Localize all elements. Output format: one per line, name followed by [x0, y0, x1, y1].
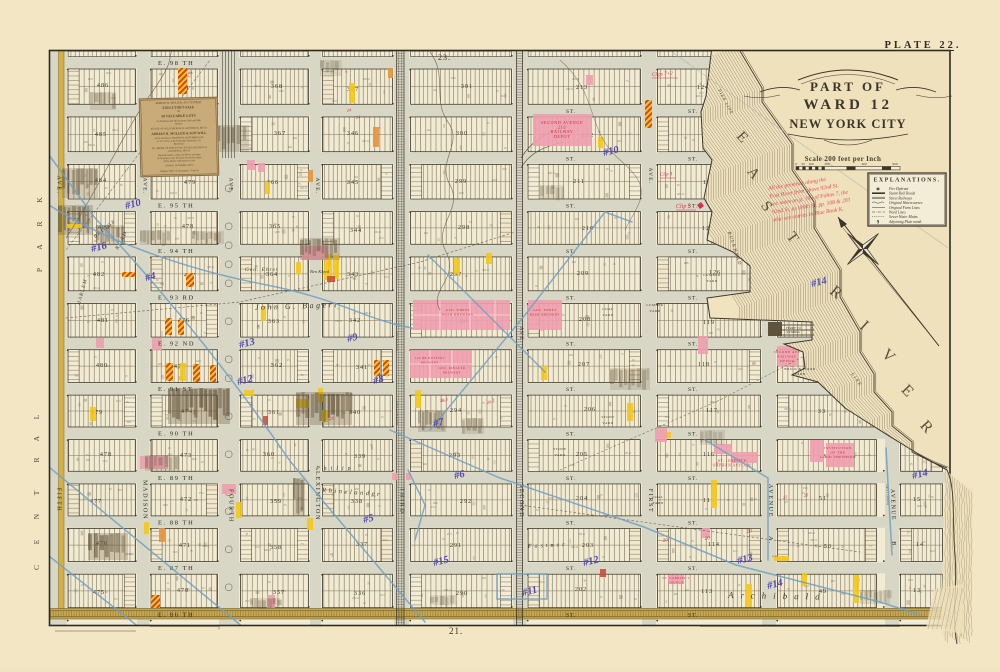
svg-text:PLATE 22.: PLATE 22. [885, 40, 962, 51]
svg-text:100.11: 100.11 [264, 549, 272, 552]
svg-text:ASTORIA: ASTORIA [786, 330, 800, 334]
svg-text:N: N [32, 513, 41, 519]
svg-text:600: 600 [892, 162, 897, 166]
svg-text:118: 118 [698, 361, 710, 368]
svg-text:COAL: COAL [652, 495, 663, 499]
svg-text:NEW YORK CITY: NEW YORK CITY [789, 117, 906, 131]
svg-text:ST.: ST. [566, 342, 576, 348]
svg-text:100.11: 100.11 [677, 193, 685, 196]
svg-text:E. 88 TH: E. 88 TH [158, 520, 194, 527]
svg-text:113: 113 [701, 588, 713, 595]
svg-text:P: P [35, 268, 44, 272]
svg-text:336: 336 [354, 590, 366, 597]
svg-text:Scale 200 feet per Inch: Scale 200 feet per Inch [805, 155, 882, 163]
svg-text:YARD: YARD [649, 309, 660, 313]
svg-text:ST.: ST. [688, 249, 698, 255]
svg-text:ELEVATED: ELEVATED [395, 331, 399, 351]
svg-text:20.8: 20.8 [163, 504, 168, 507]
svg-text:Adjoining Plate numb: Adjoining Plate numb [888, 220, 922, 224]
svg-text:L: L [32, 414, 41, 419]
svg-text:20.8: 20.8 [192, 458, 197, 461]
svg-text:25.5: 25.5 [733, 550, 738, 553]
svg-text:100.11: 100.11 [88, 144, 96, 147]
svg-text:20.8: 20.8 [275, 231, 280, 234]
svg-text:100.11: 100.11 [300, 187, 308, 190]
svg-text:100.11: 100.11 [352, 597, 360, 600]
svg-text:ST.: ST. [688, 613, 698, 619]
svg-text:346: 346 [347, 130, 359, 137]
svg-text:100.11: 100.11 [363, 78, 371, 81]
svg-text:209: 209 [577, 270, 589, 277]
svg-text:100: 100 [808, 162, 813, 166]
svg-text:Broadway:: Broadway: [174, 142, 185, 145]
svg-text:20.8: 20.8 [908, 579, 913, 582]
svg-text:20.8: 20.8 [106, 365, 111, 368]
svg-text:Philip: Philip [315, 466, 355, 472]
svg-text:ST.: ST. [688, 476, 698, 482]
svg-text:100.11: 100.11 [482, 269, 490, 272]
svg-text:368: 368 [271, 83, 283, 90]
svg-text:100.11: 100.11 [362, 140, 370, 143]
svg-text:ST.: ST. [566, 476, 576, 482]
svg-text:20.8: 20.8 [459, 192, 464, 195]
svg-text:Original Watercourses: Original Watercourses [889, 201, 923, 205]
svg-text:ST.: ST. [688, 387, 698, 393]
svg-text:100.11: 100.11 [335, 320, 343, 323]
svg-text:INSTITUTION: INSTITUTION [824, 446, 852, 450]
svg-text:20.8: 20.8 [332, 100, 337, 103]
svg-text:ST.: ST. [566, 432, 576, 438]
svg-text:291: 291 [450, 542, 462, 549]
svg-text:301: 301 [461, 83, 473, 90]
svg-text:20.8: 20.8 [617, 140, 622, 143]
svg-text:CHURCH: CHURCH [668, 581, 684, 585]
svg-text:486: 486 [97, 82, 109, 89]
svg-text:50: 50 [801, 162, 805, 166]
svg-text:YARD: YARD [602, 313, 613, 317]
svg-text:100.11: 100.11 [578, 533, 586, 536]
svg-text:100.11: 100.11 [112, 129, 120, 132]
svg-text:Sewer Water Mains: Sewer Water Mains [889, 215, 918, 219]
svg-text:AVE.: AVE. [142, 178, 148, 195]
svg-text:Geo. Ehret: Geo. Ehret [245, 267, 278, 273]
svg-text:T: T [32, 490, 41, 495]
svg-text:THIRD: THIRD [399, 488, 406, 515]
svg-text:100.11: 100.11 [572, 78, 580, 81]
svg-text:479: 479 [184, 179, 196, 186]
svg-text:473: 473 [180, 452, 192, 459]
svg-text:ST.: ST. [566, 109, 576, 115]
svg-text:100.11: 100.11 [566, 88, 574, 91]
svg-text:100.11: 100.11 [808, 532, 816, 535]
svg-text:25.5: 25.5 [199, 492, 204, 495]
svg-text:20.8: 20.8 [88, 78, 93, 81]
svg-text:25.5: 25.5 [380, 594, 385, 597]
svg-text:DEPOT: DEPOT [780, 359, 794, 363]
svg-text:25.5: 25.5 [447, 533, 452, 536]
svg-text:YARD: YARD [602, 421, 613, 425]
svg-text:K: K [35, 197, 44, 203]
svg-text:100.11: 100.11 [571, 546, 579, 549]
svg-text:AVE.: AVE. [227, 178, 233, 195]
svg-text:339: 339 [354, 453, 366, 460]
svg-text:AVE.: AVE. [518, 327, 524, 344]
svg-text:20.8: 20.8 [492, 179, 497, 182]
svg-text:478: 478 [100, 451, 112, 458]
svg-text:E. 94 TH: E. 94 TH [158, 248, 194, 255]
svg-text:100.11: 100.11 [548, 172, 556, 175]
svg-text:361: 361 [268, 409, 280, 416]
svg-text:23.: 23. [438, 53, 451, 62]
svg-text:ST.: ST. [688, 432, 698, 438]
svg-text:AVE.: AVE. [647, 168, 653, 185]
svg-text:BREWERY: BREWERY [443, 371, 461, 375]
svg-text:100.11: 100.11 [374, 231, 382, 234]
svg-text:GEO. EHRET: GEO. EHRET [533, 308, 556, 312]
svg-text:Streets.: Streets. [175, 122, 183, 125]
svg-text:25.5: 25.5 [549, 497, 554, 500]
svg-text:298: 298 [458, 224, 470, 231]
svg-text:LUMBER: LUMBER [646, 303, 663, 307]
svg-text:33: 33 [818, 408, 826, 415]
svg-text:FOURTH: FOURTH [227, 489, 234, 523]
svg-text:367: 367 [274, 130, 286, 137]
svg-text:GEO. RINGLER: GEO. RINGLER [438, 366, 465, 370]
svg-text:471: 471 [179, 542, 191, 549]
svg-text:Street Railways: Street Railways [889, 196, 912, 200]
svg-text:Ben Khral: Ben Khral [310, 269, 330, 274]
svg-text:GEO. EHRET: GEO. EHRET [446, 308, 470, 312]
svg-text:299: 299 [455, 178, 467, 185]
svg-text:LUMBER: LUMBER [703, 273, 720, 277]
svg-text:116: 116 [703, 451, 715, 458]
svg-text:R: R [35, 221, 44, 226]
svg-text:362: 362 [271, 362, 283, 369]
svg-text:E. 91 ST: E. 91 ST [158, 386, 193, 393]
svg-text:358: 358 [270, 544, 282, 551]
svg-text:20.8: 20.8 [501, 95, 506, 98]
svg-text:0: 0 [795, 162, 797, 166]
svg-text:E. 98 TH: E. 98 TH [158, 60, 194, 67]
svg-text:25.5: 25.5 [540, 581, 545, 584]
svg-text:E. 95 TH: E. 95 TH [158, 203, 194, 210]
svg-text:SECOND: SECOND [518, 484, 525, 518]
svg-text:ST.: ST. [688, 295, 698, 301]
svg-text:481: 481 [97, 317, 109, 324]
svg-text:100.11: 100.11 [696, 95, 704, 98]
svg-text:25.5: 25.5 [116, 400, 121, 403]
svg-text:FIFTH: FIFTH [56, 488, 62, 512]
svg-text:ST. GABRIEL'S: ST. GABRIEL'S [662, 576, 690, 580]
svg-text:BEER BREWERY: BEER BREWERY [530, 313, 560, 317]
svg-text:478: 478 [182, 223, 194, 230]
svg-text:STONE: STONE [553, 447, 566, 451]
svg-text:25.5: 25.5 [384, 276, 389, 279]
svg-text:363: 363 [268, 318, 280, 325]
svg-text:YARD: YARD [554, 453, 565, 457]
svg-text:25.5: 25.5 [173, 551, 178, 554]
svg-text:LAWRENCE, DEC'D.: LAWRENCE, DEC'D. [168, 149, 191, 152]
svg-text:ST.: ST. [688, 521, 698, 527]
svg-text:A: A [35, 244, 44, 250]
svg-text:ST.: ST. [688, 566, 698, 572]
svg-text:AVE.: AVE. [56, 175, 62, 194]
svg-text:20.8: 20.8 [196, 360, 201, 363]
svg-text:400: 400 [861, 162, 866, 166]
svg-text:E. 86 TH: E. 86 TH [158, 612, 194, 619]
svg-text:EXPLANATIONS.: EXPLANATIONS. [874, 178, 941, 184]
svg-text:207: 207 [578, 361, 590, 368]
svg-text:25.5: 25.5 [383, 539, 388, 542]
svg-text:ST.: ST. [688, 109, 698, 115]
svg-text:YARD: YARD [706, 279, 717, 283]
svg-text:ST.: ST. [566, 295, 576, 301]
svg-text:338: 338 [351, 498, 363, 505]
svg-text:25.5: 25.5 [103, 460, 108, 463]
svg-text:E. 90 TH: E. 90 TH [158, 431, 194, 438]
svg-text:100.11: 100.11 [810, 539, 818, 542]
svg-text:YARD: YARD [652, 501, 663, 505]
svg-text:a.16: a.16 [772, 554, 778, 558]
svg-text:20.8: 20.8 [454, 452, 459, 455]
svg-text:BEER BREWERY: BEER BREWERY [442, 313, 474, 317]
svg-text:Fire Hydrant: Fire Hydrant [888, 187, 909, 191]
svg-text:21.: 21. [449, 626, 463, 636]
svg-text:Archibald: Archibald [727, 590, 827, 602]
svg-text:203: 203 [582, 542, 594, 549]
svg-text:25.5: 25.5 [379, 237, 384, 240]
svg-text:YARD: YARD [794, 372, 805, 376]
svg-text:117: 117 [706, 407, 718, 414]
svg-text:208: 208 [579, 316, 591, 323]
svg-text:C: C [32, 565, 41, 570]
svg-text:20.8: 20.8 [738, 368, 743, 371]
svg-text:E. 89 TH: E. 89 TH [158, 475, 194, 482]
svg-text:100.11: 100.11 [93, 287, 101, 290]
svg-text:100.11: 100.11 [784, 408, 792, 411]
svg-text:292: 292 [460, 498, 472, 505]
svg-text:58 VALUABLE LOTS: 58 VALUABLE LOTS [161, 114, 195, 119]
svg-text:300: 300 [456, 130, 468, 137]
svg-text:341: 341 [356, 364, 368, 371]
svg-text:25.5: 25.5 [281, 590, 286, 593]
svg-text:Steam Rail Roads: Steam Rail Roads [889, 192, 916, 196]
svg-text:202: 202 [575, 586, 587, 593]
svg-text:200: 200 [824, 162, 829, 166]
svg-text:Ward Lines: Ward Lines [889, 211, 906, 215]
svg-text:50: 50 [824, 543, 832, 550]
svg-text:25.5: 25.5 [245, 600, 250, 603]
svg-text:Original Farm Lines: Original Farm Lines [889, 206, 920, 210]
svg-text:100.11: 100.11 [254, 85, 262, 88]
svg-text:JACOB RUPPERT: JACOB RUPPERT [415, 356, 445, 360]
svg-text:ST.: ST. [566, 613, 576, 619]
svg-text:AVE.: AVE. [314, 178, 320, 195]
svg-text:25.5: 25.5 [803, 487, 808, 490]
svg-text:ST.: ST. [566, 566, 576, 572]
svg-text:Clip 5: Clip 5 [676, 203, 691, 210]
svg-text:ST.: ST. [688, 342, 698, 348]
svg-text:R: R [32, 457, 41, 462]
svg-text:BREWERY: BREWERY [421, 361, 439, 365]
svg-text:✱: ✱ [876, 187, 880, 192]
svg-text:25.5: 25.5 [255, 546, 260, 549]
svg-text:100.11: 100.11 [207, 266, 215, 269]
svg-text:E. 92 ND: E. 92 ND [158, 341, 195, 348]
svg-text:E: E [32, 539, 41, 544]
svg-text:206: 206 [584, 406, 596, 413]
svg-text:204: 204 [576, 495, 588, 502]
svg-text:ST.: ST. [566, 521, 576, 527]
svg-text:205: 205 [576, 451, 588, 458]
svg-text:ST.: ST. [566, 156, 576, 162]
svg-text:100.11: 100.11 [187, 217, 195, 220]
svg-text:100.11: 100.11 [444, 589, 452, 592]
svg-text:20.8: 20.8 [279, 90, 284, 93]
svg-text:MADISON: MADISON [142, 480, 149, 520]
svg-text:25.5: 25.5 [502, 168, 507, 171]
svg-text:A: A [32, 435, 41, 441]
svg-text:100.11: 100.11 [170, 192, 178, 195]
svg-text:ST.: ST. [688, 156, 698, 162]
svg-text:20.8: 20.8 [274, 499, 279, 502]
svg-text:119: 119 [703, 319, 715, 326]
svg-text:RAILWAY: RAILWAY [777, 355, 796, 359]
svg-text:342: 342 [349, 317, 361, 324]
svg-text:DEPOT: DEPOT [554, 134, 571, 139]
svg-text:OF THE: OF THE [830, 451, 845, 455]
svg-text:294: 294 [450, 407, 462, 414]
svg-text:20.8: 20.8 [106, 72, 111, 75]
svg-text:20.8: 20.8 [433, 502, 438, 505]
svg-text:472: 472 [180, 496, 192, 503]
svg-text:485: 485 [95, 131, 107, 138]
svg-text:20.8: 20.8 [917, 505, 922, 508]
svg-text:15: 15 [913, 496, 921, 503]
svg-text:COAL: COAL [602, 307, 613, 311]
svg-text:WARD 12: WARD 12 [803, 97, 892, 113]
svg-text:STONE: STONE [601, 415, 614, 419]
svg-text:Clip 3: Clip 3 [660, 172, 673, 178]
svg-text:25.5: 25.5 [431, 506, 436, 509]
svg-text:20.8: 20.8 [84, 141, 89, 144]
svg-text:25.5: 25.5 [114, 598, 119, 601]
svg-text:100.11: 100.11 [624, 452, 632, 455]
svg-text:PART OF: PART OF [810, 79, 886, 94]
svg-text:211: 211 [573, 178, 585, 185]
svg-text:482: 482 [93, 271, 105, 278]
svg-text:20.8: 20.8 [930, 550, 935, 553]
svg-text:JOHN E. BOWKER, ATT'Y: JOHN E. BOWKER, ATT'Y [165, 164, 194, 168]
svg-text:MANHATTAN: MANHATTAN [395, 401, 399, 426]
svg-text:ST.: ST. [566, 387, 576, 393]
svg-text:SECOND AVE: SECOND AVE [774, 350, 801, 354]
svg-text:20.8: 20.8 [451, 77, 456, 80]
svg-text:BRICK & WOOD: BRICK & WOOD [784, 367, 815, 371]
svg-text:GOOD SHEPHERD: GOOD SHEPHERD [820, 455, 856, 459]
svg-text:ST.: ST. [566, 204, 576, 210]
svg-text:114: 114 [708, 541, 720, 548]
svg-text:25.5: 25.5 [699, 92, 704, 95]
svg-text:25.5: 25.5 [665, 416, 670, 419]
svg-text:100.11: 100.11 [202, 545, 210, 548]
